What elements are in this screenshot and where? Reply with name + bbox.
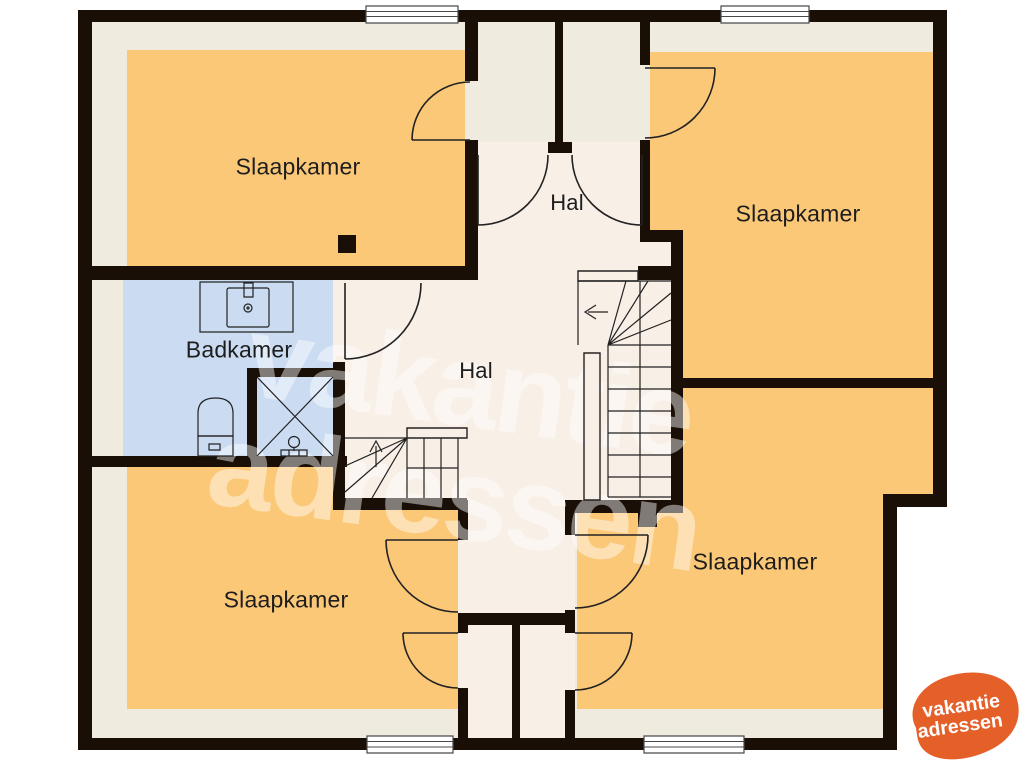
window-icon bbox=[721, 6, 809, 23]
door-swing-icon bbox=[575, 633, 632, 690]
floorplan-canvas: vakantie adressen bbox=[0, 0, 1024, 768]
room-label-hall-main: Hal bbox=[459, 358, 493, 384]
vakantieadressen-logo: vakantie adressen bbox=[898, 666, 1024, 766]
window-icon bbox=[644, 736, 744, 753]
room-label-hall-top: Hal bbox=[550, 190, 584, 216]
door-swing-icon bbox=[403, 633, 458, 688]
window-icon bbox=[366, 6, 458, 23]
room-label-bedroom-bottom-left: Slaapkamer bbox=[224, 587, 349, 614]
linework-layer bbox=[0, 0, 1024, 768]
stairs-icon bbox=[345, 428, 467, 498]
door-swing-icon bbox=[575, 535, 648, 608]
door-swing-icon bbox=[478, 155, 548, 225]
room-label-bedroom-top-left: Slaapkamer bbox=[236, 154, 361, 181]
door-swing-icon bbox=[645, 68, 715, 138]
washbasin-icon bbox=[200, 282, 293, 332]
door-swing-icon bbox=[386, 540, 458, 612]
window-icon bbox=[367, 736, 453, 753]
room-label-bathroom: Badkamer bbox=[186, 337, 292, 364]
door-swing-icon bbox=[345, 283, 421, 359]
door-swing-icon bbox=[412, 82, 470, 140]
room-label-bedroom-top-right: Slaapkamer bbox=[736, 201, 861, 228]
room-label-bedroom-bottom-right: Slaapkamer bbox=[693, 549, 818, 576]
stairs-icon bbox=[578, 271, 671, 500]
shower-icon bbox=[257, 377, 333, 456]
toilet-icon bbox=[198, 398, 233, 456]
